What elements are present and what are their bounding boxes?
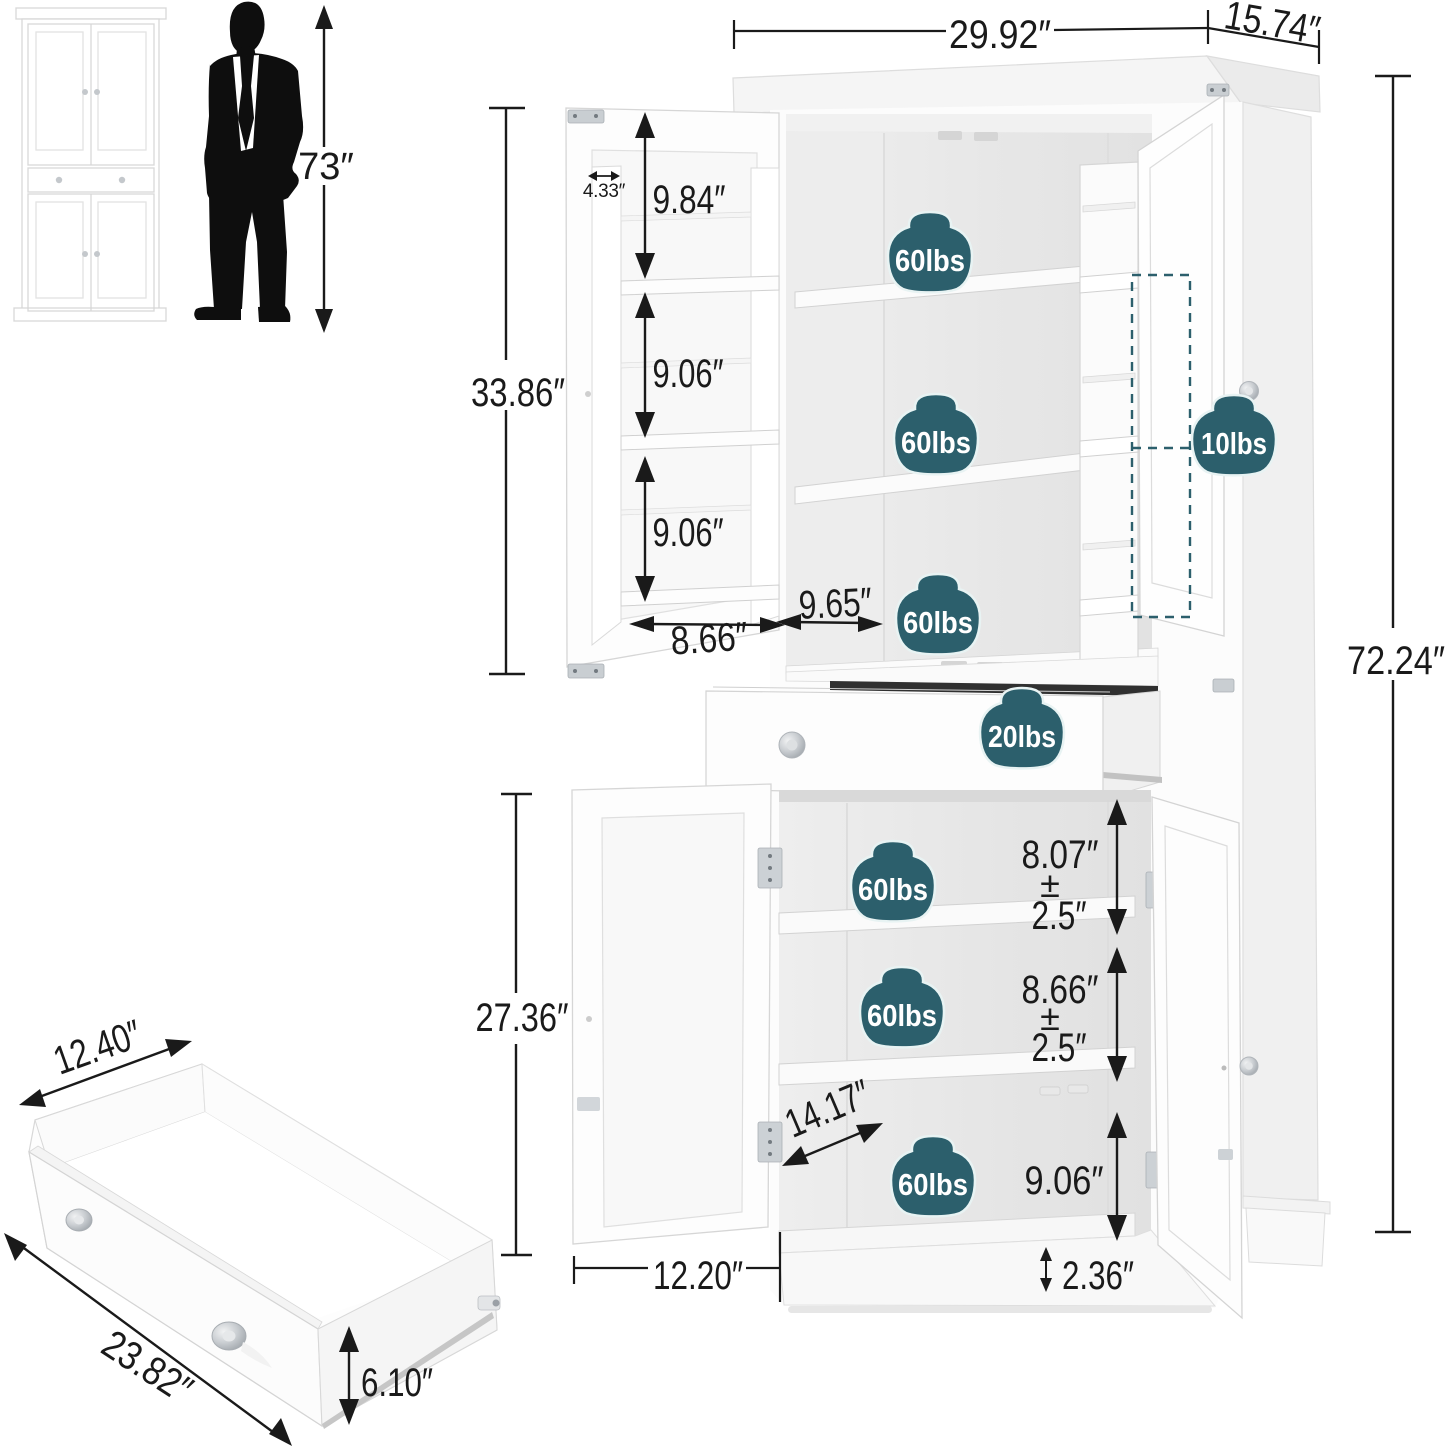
svg-text:60lbs: 60lbs — [901, 425, 971, 460]
svg-text:73″: 73″ — [298, 146, 354, 188]
svg-text:8.66″: 8.66″ — [1022, 968, 1099, 1012]
svg-text:72.24″: 72.24″ — [1347, 639, 1445, 683]
svg-text:9.84″: 9.84″ — [653, 178, 726, 222]
svg-text:33.86″: 33.86″ — [471, 371, 565, 415]
svg-text:4.33″: 4.33″ — [583, 181, 626, 202]
svg-text:2.36″: 2.36″ — [1062, 1254, 1134, 1298]
svg-text:60lbs: 60lbs — [898, 1167, 968, 1202]
svg-text:9.06″: 9.06″ — [1025, 1159, 1104, 1203]
svg-text:6.10″: 6.10″ — [361, 1361, 433, 1405]
svg-text:60lbs: 60lbs — [858, 872, 928, 907]
svg-text:2.5″: 2.5″ — [1032, 894, 1087, 938]
svg-text:9.06″: 9.06″ — [653, 511, 724, 555]
svg-text:12.20″: 12.20″ — [653, 1254, 743, 1298]
svg-text:10lbs: 10lbs — [1201, 426, 1267, 461]
svg-text:29.92″: 29.92″ — [949, 13, 1051, 57]
svg-text:9.65″: 9.65″ — [798, 580, 873, 628]
svg-text:60lbs: 60lbs — [895, 243, 965, 278]
svg-text:8.66″: 8.66″ — [669, 614, 749, 663]
svg-text:27.36″: 27.36″ — [476, 996, 569, 1040]
svg-text:9.06″: 9.06″ — [653, 352, 724, 396]
svg-text:20lbs: 20lbs — [988, 719, 1056, 754]
svg-text:2.5″: 2.5″ — [1032, 1026, 1087, 1070]
svg-text:60lbs: 60lbs — [903, 605, 973, 640]
svg-text:60lbs: 60lbs — [867, 998, 937, 1033]
svg-text:8.07″: 8.07″ — [1022, 833, 1099, 877]
